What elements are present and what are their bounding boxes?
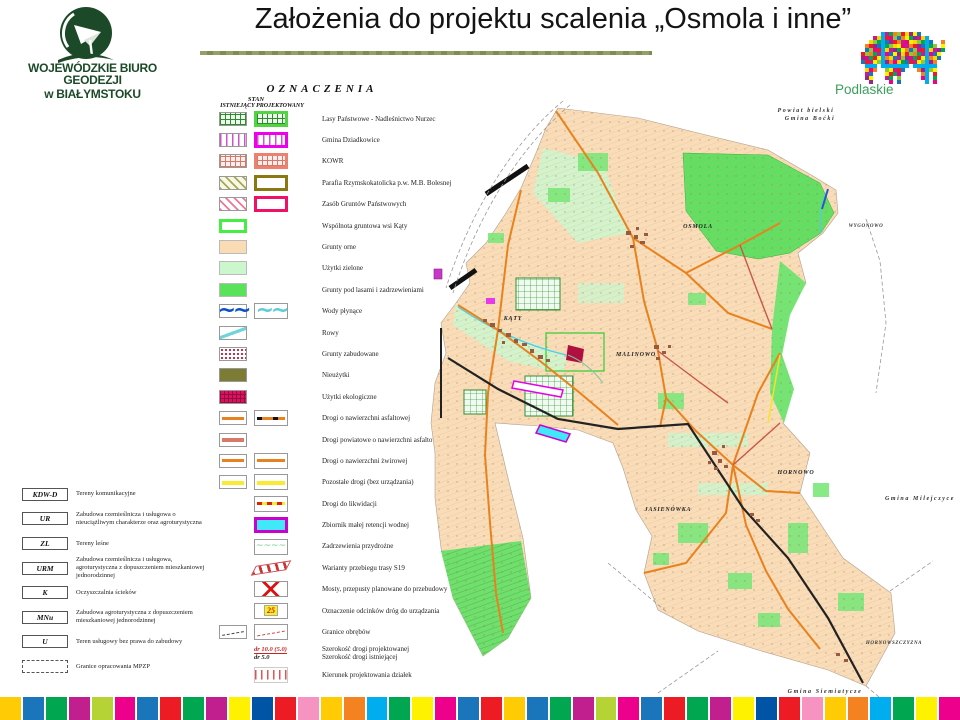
- legend-label: Wspólnota gruntowa wsi Kąty: [302, 222, 407, 230]
- legend-swatch-existing: [219, 240, 247, 254]
- map-label-osmola: OSMOLA: [683, 224, 713, 230]
- zoning-description: Granice opracowania MPZP: [76, 663, 150, 671]
- legend-label: Granice obrębów: [302, 628, 370, 636]
- legend-label: Zbiornik małej retencji wodnej: [302, 521, 409, 529]
- legend-label: Nieużytki: [302, 371, 350, 379]
- footer-color-square: [825, 697, 846, 720]
- legend-row: dr 10.0 (5.0) dr 5.0 Szerokość drogi pro…: [214, 643, 432, 664]
- legend-heading: OZNACZENIA: [214, 83, 430, 95]
- zoning-code-box: U: [22, 635, 68, 648]
- footer-color-square: [596, 697, 617, 720]
- footer-color-square: [504, 697, 525, 720]
- footer-color-square: [916, 697, 937, 720]
- legend-row: Pozostałe drogi (bez urządzania): [214, 472, 432, 493]
- legend-row: KOWR: [214, 151, 432, 172]
- legend-row: Grunty zabudowane: [214, 343, 432, 364]
- legend-row: Lasy Państwowe - Nadleśnictwo Nurzec: [214, 108, 432, 129]
- zoning-description: Tereny komunikacyjne: [76, 490, 136, 498]
- footer-color-square: [137, 697, 158, 720]
- footer-color-square: [389, 697, 410, 720]
- legend-swatch-planned: [254, 496, 288, 512]
- legend-row: Użytki ekologiczne: [214, 386, 432, 407]
- map-state-forest: [516, 278, 560, 310]
- footer-color-square: [893, 697, 914, 720]
- footer-color-square: [275, 697, 296, 720]
- footer-color-square: [756, 697, 777, 720]
- zoning-description: Zabudowa rzemieślnicza i usługowa, agrot…: [76, 556, 214, 579]
- legend-stan-label: STAN: [219, 96, 293, 103]
- legend-row: Nieużytki: [214, 365, 432, 386]
- legend-row: Rowy: [214, 322, 432, 343]
- legend-label: Lasy Państwowe - Nadleśnictwo Nurzec: [302, 115, 436, 123]
- legend-row: Wspólnota gruntowa wsi Kąty: [214, 215, 432, 236]
- legend-swatch-planned: 25: [254, 603, 288, 619]
- map-label-gmina-siemiatycze: Gmina Siemiatycze: [788, 689, 863, 695]
- legend-label: Drogi powiatowe o nawierzchni asfaltowej: [302, 436, 443, 444]
- slide: WOJEWÓDZKIE BIURO GEODEZJI w BIAŁYMSTOKU…: [0, 0, 960, 720]
- footer-color-square: [618, 697, 639, 720]
- footer-color-square: [69, 697, 90, 720]
- legend-swatch-existing: [219, 454, 247, 468]
- wbg-logo-text: WOJEWÓDZKIE BIURO GEODEZJI w BIAŁYMSTOKU: [0, 62, 185, 100]
- legend-swatch-existing: [219, 326, 247, 340]
- footer-color-square: [848, 697, 869, 720]
- wbg-line2: w BIAŁYMSTOKU: [0, 88, 185, 100]
- wbg-line1: WOJEWÓDZKIE BIURO GEODEZJI: [28, 61, 157, 87]
- legend-row: Zbiornik małej retencji wodnej: [214, 514, 432, 535]
- footer-color-square: [92, 697, 113, 720]
- footer-color-square: [733, 697, 754, 720]
- zoning-item: U Teren usługowy bez prawa do zabudowy: [22, 630, 214, 655]
- legend-row: Grunty orne: [214, 236, 432, 257]
- legend-row: Gmina Dziadkowice: [214, 129, 432, 150]
- zoning-code-box: UR: [22, 512, 68, 525]
- legend-swatch-existing: [219, 304, 247, 318]
- legend-swatch-planned: [254, 410, 288, 426]
- legend-swatch-existing: [219, 133, 247, 147]
- legend-swatch-glyph2: dr 5.0: [254, 654, 270, 661]
- legend-row: Drogi powiatowe o nawierzchni asfaltowej: [214, 429, 432, 450]
- footer-color-square: [710, 697, 731, 720]
- legend-label: Drogi o nawierzchni asfaltowej: [302, 414, 410, 422]
- legend-row: Drogi o nawierzchni żwirowej: [214, 450, 432, 471]
- footer-color-square: [870, 697, 891, 720]
- map-label-hornowszczyzna: HORNOWSZCZYZNA: [865, 641, 922, 646]
- footer-color-square: [664, 697, 685, 720]
- legend-swatch-existing: [219, 176, 247, 190]
- title-underline: [200, 51, 652, 55]
- footer-color-square: [46, 697, 67, 720]
- footer-color-square: [183, 697, 204, 720]
- legend-swatch-existing: [219, 390, 247, 404]
- legend-swatch-planned: [254, 624, 288, 640]
- zoning-description: Tereny leśne: [76, 540, 109, 548]
- footer-color-square: [779, 697, 800, 720]
- legend-row: Drogi do likwidacji: [214, 493, 432, 514]
- footer-color-square: [252, 697, 273, 720]
- legend-label: Grunty orne: [302, 243, 356, 251]
- legend-row: Granice obrębów: [214, 621, 432, 642]
- zoning-code-box: ZL: [22, 537, 68, 550]
- legend-label: Rowy: [302, 329, 339, 337]
- legend-swatch-planned: [254, 517, 288, 533]
- zoning-description: Zabudowa rzemieślnicza i usługowa o nieu…: [76, 511, 214, 527]
- legend-row: Wody płynące: [214, 301, 432, 322]
- legend-swatch-planned: [254, 474, 288, 490]
- legend-items: Lasy Państwowe - Nadleśnictwo Nurzec Gmi…: [214, 108, 432, 686]
- legend-row: Zadrzewienia przydrożne: [214, 536, 432, 557]
- legend-label: Mosty, przepusty planowane do przebudowy: [302, 585, 447, 593]
- legend-label: Użytki zielone: [302, 264, 363, 272]
- legend-swatch-existing: [219, 411, 247, 425]
- legend-swatch-existing: [219, 197, 247, 211]
- legend-swatch-existing: [219, 261, 247, 275]
- zoning-description: Zabudowa agroturystyczna z dopuszczeniem…: [76, 609, 214, 625]
- legend-swatch-existing: [219, 219, 247, 233]
- map-label-hornowo: HORNOWO: [777, 470, 815, 476]
- zoning-legend: KDW-D Tereny komunikacyjne UR Zabudowa r…: [22, 482, 214, 679]
- zoning-item: Granice opracowania MPZP: [22, 654, 214, 679]
- legend-label: Grunty pod lasami i zadrzewieniami: [302, 286, 424, 294]
- legend-row: 25 Oznaczenie odcinków dróg do urządzani…: [214, 600, 432, 621]
- zoning-item: KDW-D Tereny komunikacyjne: [22, 482, 214, 507]
- footer-color-square: [458, 697, 479, 720]
- legend-label: Zasób Gruntów Państwowych: [302, 200, 406, 208]
- footer-color-square: [939, 697, 960, 720]
- legend-swatch-existing: [219, 154, 247, 168]
- zoning-code-box: K: [22, 586, 68, 599]
- legend-swatch-planned: [254, 453, 288, 469]
- cadastral-map: Powiat bielski Gmina Boćki WYGONOWO OSMO…: [428, 93, 960, 700]
- footer-color-square: [367, 697, 388, 720]
- legend-label: Wody płynące: [302, 307, 362, 315]
- legend-label: Pozostałe drogi (bez urządzania): [302, 478, 414, 486]
- zoning-item: K Oczyszczalnia ścieków: [22, 580, 214, 605]
- legend-label: Gmina Dziadkowice: [302, 136, 380, 144]
- legend-swatch-existing: [219, 625, 247, 639]
- legend-swatch-existing: [219, 368, 247, 382]
- footer-color-square: [641, 697, 662, 720]
- legend-label: Szerokość drogi projektowanejSzerokość d…: [302, 645, 409, 661]
- map-label-wygonowo: WYGONOWO: [849, 224, 884, 229]
- footer-color-square: [229, 697, 250, 720]
- legend-swatch-planned: [254, 539, 288, 555]
- legend-label: KOWR: [302, 157, 343, 165]
- footer-color-square: [115, 697, 136, 720]
- legend-row: Zasób Gruntów Państwowych: [214, 194, 432, 215]
- zoning-item: ZL Tereny leśne: [22, 531, 214, 556]
- legend-swatch-planned: [254, 196, 288, 212]
- zoning-description: Oczyszczalnia ścieków: [76, 589, 136, 597]
- legend-swatch-existing: [219, 433, 247, 447]
- footer-color-square: [412, 697, 433, 720]
- legend-swatch-glyph: 25: [264, 605, 278, 616]
- footer-color-square: [687, 697, 708, 720]
- legend-swatch-glyph: dr 10.0 (5.0): [254, 646, 287, 654]
- zoning-code-box: MNu: [22, 611, 68, 624]
- legend-label: Kierunek projektowania działek: [302, 671, 412, 679]
- map-label-gmina-milejczyce: Gmina Milejczyce: [885, 496, 955, 502]
- legend-row: Użytki zielone: [214, 258, 432, 279]
- legend-swatch-planned: [254, 132, 288, 148]
- footer-color-square: [0, 697, 21, 720]
- footer-color-square: [481, 697, 502, 720]
- legend-swatch-planned: [254, 175, 288, 191]
- legend-label: Oznaczenie odcinków dróg do urządzania: [302, 607, 439, 615]
- legend-row: Parafia Rzymskokatolicka p.w. M.B. Boles…: [214, 172, 432, 193]
- legend-label: Warianty przebiegu trasy S19: [302, 564, 405, 572]
- footer-color-square: [23, 697, 44, 720]
- footer-color-square: [527, 697, 548, 720]
- legend-swatch-planned: [254, 581, 288, 597]
- footer-color-square: [573, 697, 594, 720]
- zoning-item: URM Zabudowa rzemieślnicza i usługowa, a…: [22, 556, 214, 581]
- footer-color-square: [550, 697, 571, 720]
- map-label-gmina-bocki: Gmina Boćki: [785, 116, 835, 122]
- zoning-item: MNu Zabudowa agroturystyczna z dopuszcze…: [22, 605, 214, 630]
- zoning-description: Teren usługowy bez prawa do zabudowy: [76, 638, 182, 646]
- legend-label: Drogi o nawierzchni żwirowej: [302, 457, 407, 465]
- footer-color-square: [802, 697, 823, 720]
- footer-color-square: [298, 697, 319, 720]
- legend-swatch-existing: [219, 475, 247, 489]
- legend-row: Drogi o nawierzchni asfaltowej: [214, 407, 432, 428]
- legend-row: Kierunek projektowania działek: [214, 664, 432, 685]
- zoning-code-box: KDW-D: [22, 488, 68, 501]
- footer-color-square: [435, 697, 456, 720]
- legend-label: Grunty zabudowane: [302, 350, 379, 358]
- legend-label: Zadrzewienia przydrożne: [302, 542, 393, 550]
- zoning-code-box: [22, 660, 68, 673]
- map-label-malinowo: MALINOWO: [615, 352, 656, 358]
- slide-title: Założenia do projektu scalenia „Osmola i…: [168, 3, 938, 36]
- zoning-code-box: URM: [22, 562, 68, 575]
- legend-swatch-existing: [219, 112, 247, 126]
- map-magenta-parcel: [486, 298, 495, 304]
- legend-swatch-planned: dr 10.0 (5.0) dr 5.0: [254, 645, 288, 661]
- legend-row: Warianty przebiegu trasy S19: [214, 557, 432, 578]
- legend-swatch-planned: [254, 303, 288, 319]
- legend-swatch-planned: [254, 667, 288, 683]
- footer-color-strip: [0, 697, 960, 720]
- legend-swatch-existing: [219, 347, 247, 361]
- legend-swatch-planned: [254, 111, 288, 127]
- legend-label: Użytki ekologiczne: [302, 393, 377, 401]
- legend-label: Drogi do likwidacji: [302, 500, 377, 508]
- map-canvas: Powiat bielski Gmina Boćki WYGONOWO OSMO…: [428, 93, 960, 700]
- zoning-item: UR Zabudowa rzemieślnicza i usługowa o n…: [22, 507, 214, 532]
- footer-color-square: [321, 697, 342, 720]
- legend-swatch-planned: [254, 153, 288, 169]
- map-magenta-parcel: [434, 269, 442, 279]
- footer-color-square: [344, 697, 365, 720]
- footer-color-square: [160, 697, 181, 720]
- map-state-forest: [464, 390, 486, 414]
- legend-row: Mosty, przepusty planowane do przebudowy: [214, 579, 432, 600]
- legend-swatch-existing: [219, 283, 247, 297]
- map-label-katy: KĄTY: [503, 316, 523, 322]
- footer-color-square: [206, 697, 227, 720]
- legend-swatch-planned: [254, 560, 288, 576]
- map-label-jasienowka: JASIENÓWKA: [644, 505, 692, 513]
- map-label-powiat-bielski: Powiat bielski: [778, 108, 835, 114]
